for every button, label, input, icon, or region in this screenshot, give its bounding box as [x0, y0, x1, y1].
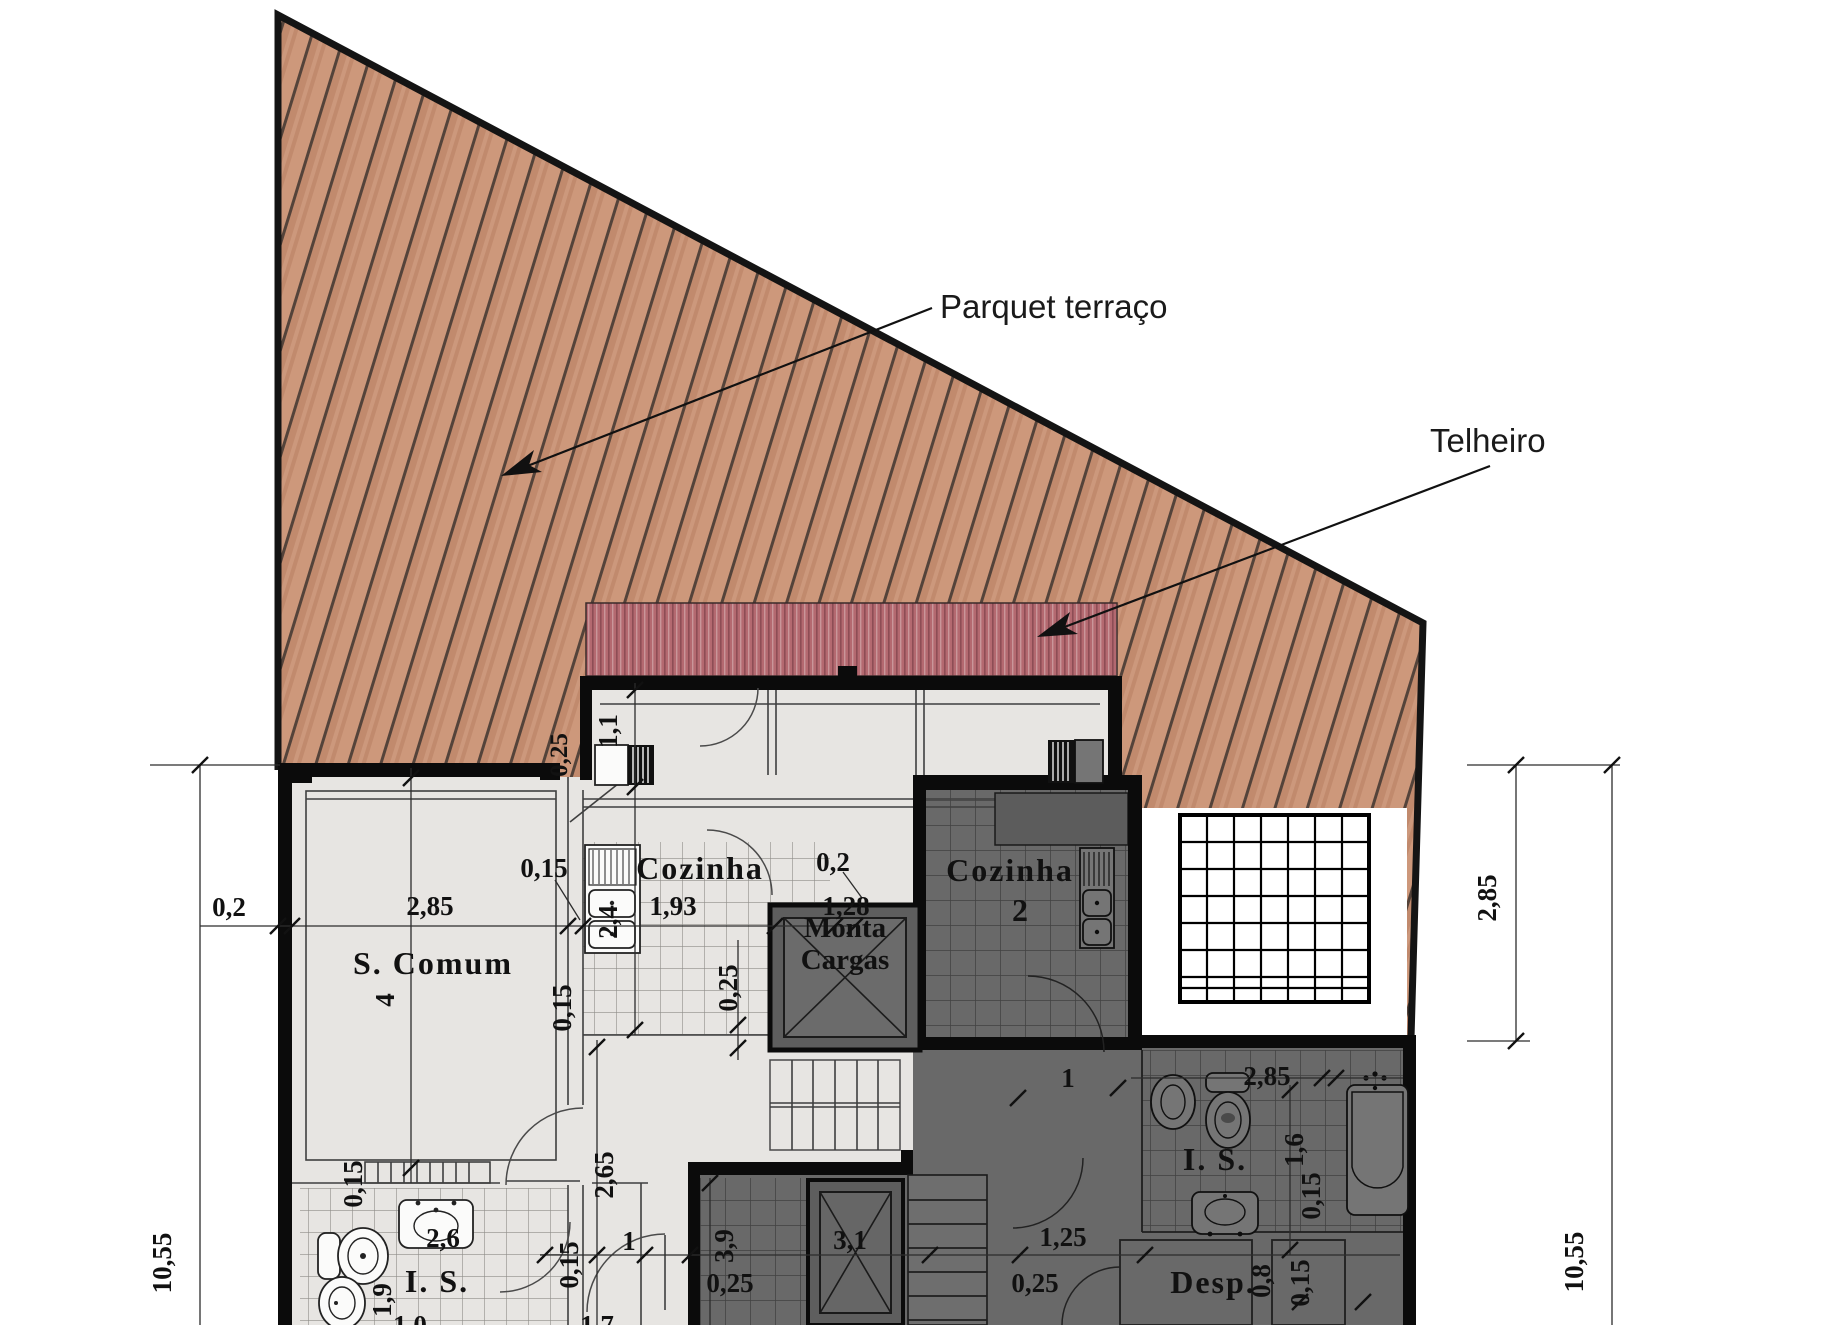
dim-0-2-left: 0,2 [212, 892, 246, 922]
dim-0-25-brown: 0,25 [546, 733, 573, 777]
dim-2-85-scomum: 2,85 [406, 891, 453, 921]
dim-1-6-bath: 1,6 [1279, 1133, 1309, 1167]
dim-4-scomum: 4 [370, 993, 400, 1007]
telheiro-label: Telheiro [1430, 422, 1546, 459]
dim-2-65: 2,65 [589, 1151, 619, 1198]
wall-top-upper [586, 676, 1122, 690]
wall-corner-block2 [292, 763, 312, 783]
dim-1-93-kitchen: 1,93 [649, 891, 696, 921]
kitchen-right-counter [995, 793, 1128, 845]
dim-2-6-basin: 2,6 [426, 1223, 460, 1253]
dim-0-15-hall: 0,15 [554, 1241, 584, 1288]
floorplan-drawing: Parquet terraço Telheiro S. Comum Cozinh… [0, 0, 1842, 1325]
room-monta-line2: Cargas [801, 944, 890, 976]
dim-1-7-cut: 1,7 [580, 1310, 614, 1325]
toilet-cistern [318, 1233, 340, 1279]
dim-2-85-isright: 2,85 [1243, 1061, 1290, 1091]
wall-sliver [901, 1150, 913, 1175]
parquet-terrace-label: Parquet terraço [940, 288, 1167, 325]
stairs-upper [770, 1060, 900, 1150]
wall-chimney-bump [838, 666, 857, 676]
dim-0-25-kitchen: 0,25 [713, 964, 743, 1011]
room-s-comum: S. Comum [353, 945, 513, 981]
bidet-right [1151, 1075, 1195, 1129]
dim-3-1-shaft: 3,1 [833, 1225, 867, 1255]
dim-1-0-cut: 1,0 [393, 1310, 427, 1325]
wall-landing-top [688, 1162, 913, 1175]
dim-10-55-left: 10,55 [147, 1233, 177, 1294]
wall-right-upper [1108, 676, 1122, 790]
room-cozinha-right: Cozinha [946, 852, 1074, 888]
wall-skylight-bottom [1128, 1035, 1403, 1048]
dim-1-25-corridor: 1,25 [1039, 1222, 1086, 1252]
dim-2-4: 2,4 [593, 905, 623, 939]
dim-0-15-isleft: 0,15 [338, 1160, 368, 1207]
dim-1-1: 1,1 [593, 714, 623, 748]
wall-cz2-bottom [913, 1037, 1142, 1050]
dim-0-25-stair: 0,25 [706, 1268, 753, 1298]
dim-0-2-mid: 0,2 [816, 847, 850, 877]
wall-left [278, 763, 292, 1325]
dim-10-55-right: 10,55 [1559, 1232, 1589, 1293]
dim-0-15-kitchenwall: 0,15 [547, 984, 577, 1031]
room-desp: Desp. [1170, 1264, 1256, 1300]
dim-0-15-bath: 0,15 [1296, 1172, 1326, 1219]
dim-0-8-desp: 0,8 [1246, 1264, 1276, 1298]
dim-1-28-monta: 1,28 [822, 891, 869, 921]
dim-0-15-desp: 0,15 [1285, 1259, 1315, 1306]
appliance-stove-left [595, 745, 654, 785]
room-cozinha-right-number: 2 [1012, 892, 1030, 928]
dim-2-85-right: 2,85 [1472, 874, 1502, 921]
room-is-left: I. S. [405, 1263, 469, 1299]
skylight-patio [1142, 808, 1407, 1035]
wall-landing-left [688, 1162, 700, 1325]
dim-0-25-corridor: 0,25 [1011, 1268, 1058, 1298]
dim-1-hall: 1 [622, 1226, 636, 1256]
dim-1-corridor: 1 [1061, 1063, 1075, 1093]
dim-3-9-stair: 3,9 [709, 1229, 739, 1263]
bathtub [1347, 1085, 1408, 1215]
kitchen-right-sink [1080, 848, 1114, 948]
stairs-lower [908, 1175, 987, 1325]
floorplan-canvas: Parquet terraço Telheiro S. Comum Cozinh… [0, 0, 1842, 1325]
wall-left-upper [580, 676, 592, 780]
wall-cz2-right [1128, 775, 1142, 1048]
room-is-right: I. S. [1183, 1141, 1247, 1177]
telheiro-roof [586, 603, 1117, 676]
room-cozinha-left: Cozinha [636, 850, 764, 886]
dim-0-15-wall: 0,15 [520, 853, 567, 883]
bidet [319, 1277, 365, 1325]
appliance-stove-right [1048, 740, 1103, 783]
wall-cz2-top [913, 775, 1142, 790]
